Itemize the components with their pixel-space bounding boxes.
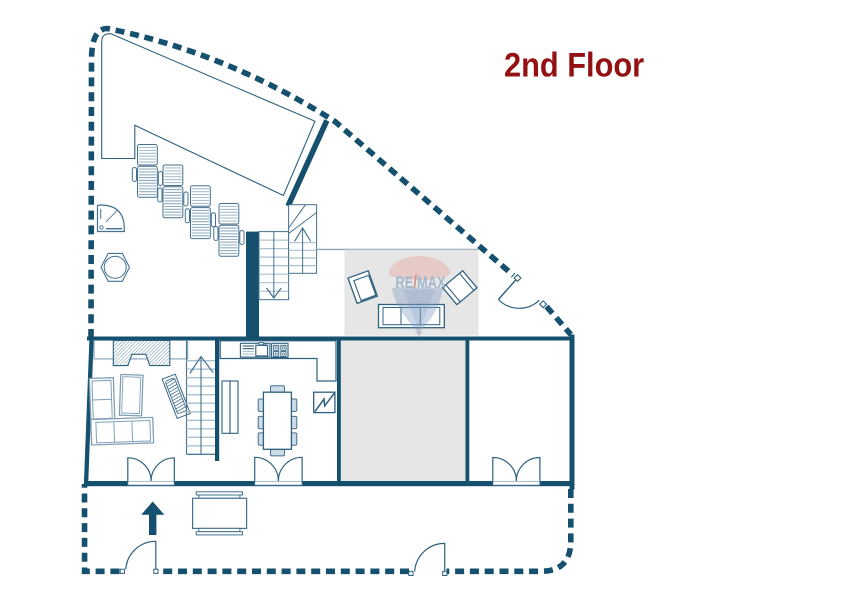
svg-text:2nd Floor: 2nd Floor [504, 46, 644, 84]
svg-text:RE/MAX: RE/MAX [396, 272, 446, 292]
